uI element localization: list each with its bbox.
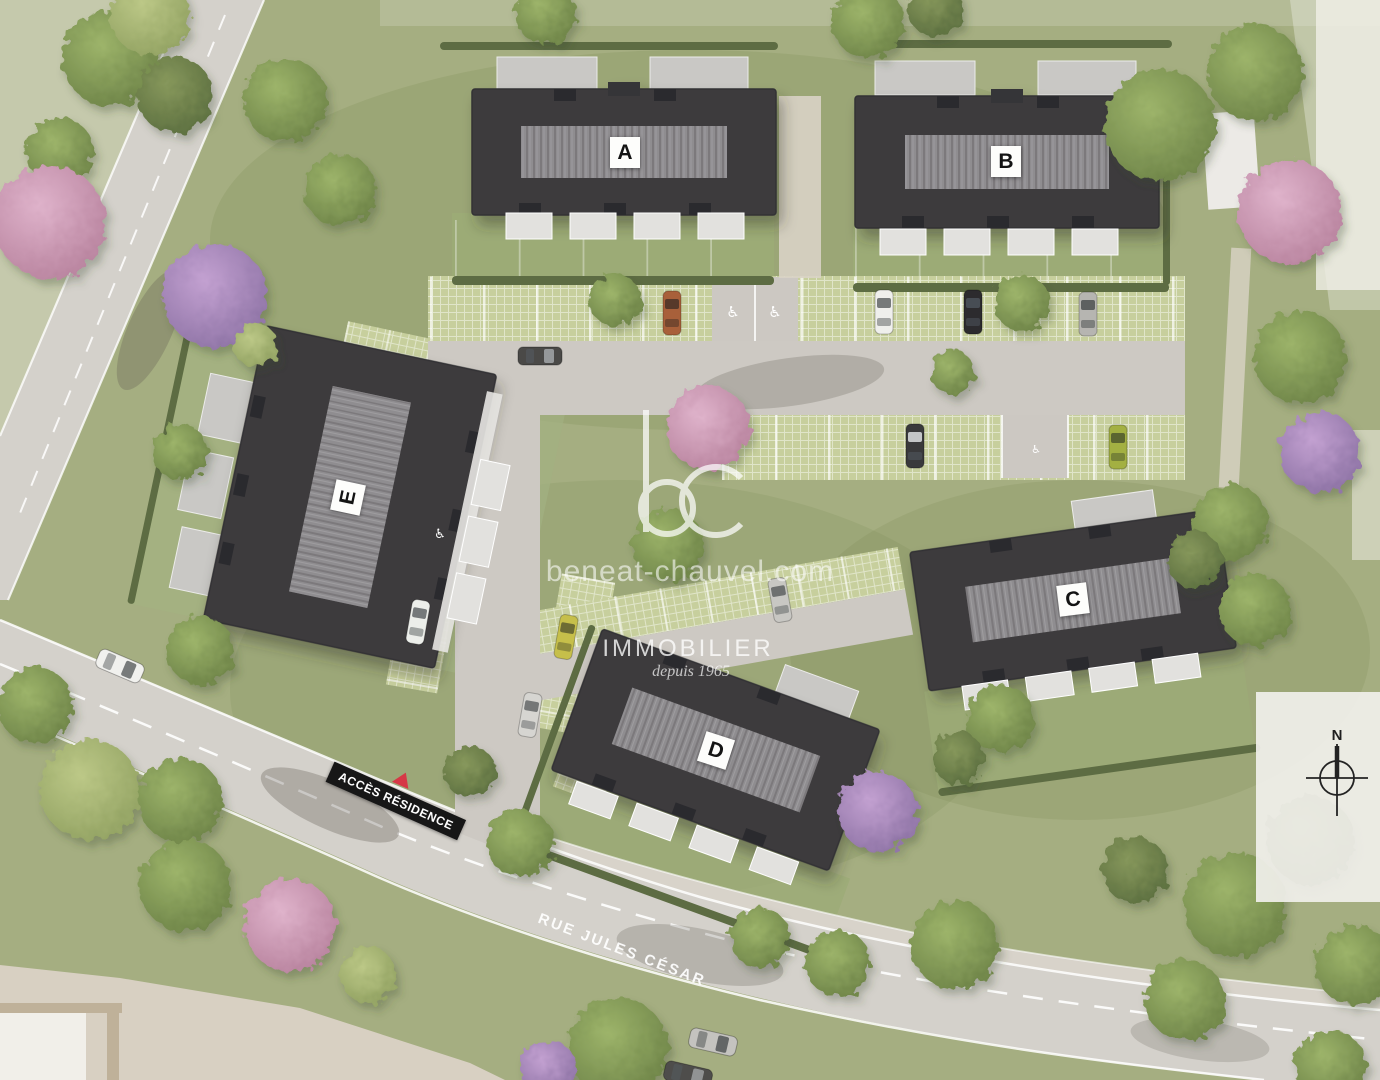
disabled-parking-icon: ♿: [768, 303, 781, 321]
disabled-parking-icon: ♿: [434, 527, 446, 542]
car: [687, 1027, 738, 1057]
site-plan-canvas: ♿ ♿ ♿ ♿ N: [0, 0, 1380, 1080]
car: [518, 347, 562, 365]
car: [875, 290, 893, 334]
site-plan-rendering: ♿ ♿ ♿ ♿ N A B C D E beneat-chauvel.com I…: [0, 0, 1380, 1080]
compass-north-label: N: [1332, 727, 1343, 744]
building-label-e: E: [330, 479, 366, 516]
car: [663, 291, 681, 335]
building-label-a: A: [610, 137, 640, 168]
car: [662, 1060, 713, 1080]
disabled-parking-icon: ♿: [1031, 443, 1041, 456]
car: [906, 424, 924, 468]
building-label-c: C: [1056, 582, 1090, 616]
compass: N: [1256, 692, 1380, 902]
car: [964, 290, 982, 334]
car: [1109, 425, 1127, 469]
disabled-parking-icon: ♿: [726, 303, 739, 321]
building-label-b: B: [991, 146, 1021, 177]
plaza-bottom-left: [0, 965, 505, 1080]
car: [1079, 292, 1097, 336]
